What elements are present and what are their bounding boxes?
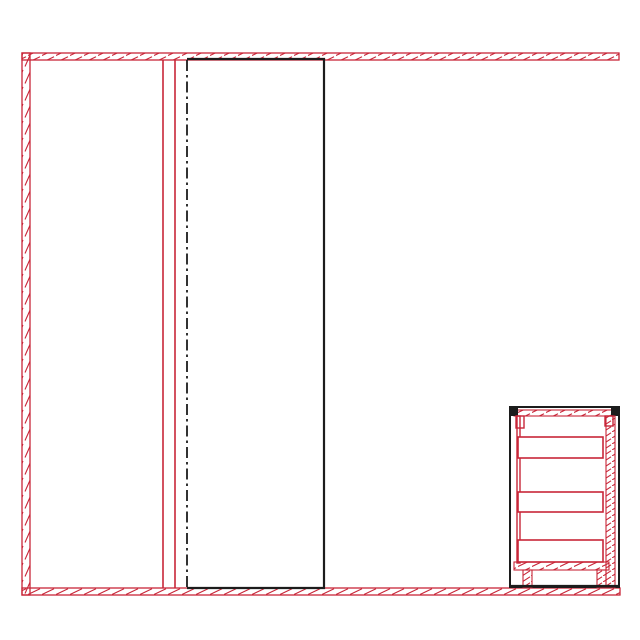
nightstand-drawer-3 bbox=[518, 540, 603, 562]
nightstand-plinth-left bbox=[523, 570, 532, 587]
nightstand-plinth-right bbox=[597, 570, 606, 587]
nightstand-top-panel bbox=[514, 410, 614, 416]
nightstand-drawer-1 bbox=[518, 437, 603, 458]
wall-section-left bbox=[22, 53, 30, 595]
nightstand-section bbox=[510, 407, 619, 587]
nightstand-drawer-2 bbox=[518, 492, 603, 512]
nightstand-right-side-panel bbox=[606, 416, 615, 587]
drawing-canvas: Interior elevation drawing: sectioned ro… bbox=[0, 0, 640, 640]
cad-drawing bbox=[0, 0, 640, 640]
nightstand-top-left-cap bbox=[510, 407, 518, 416]
nightstand-drawers bbox=[518, 437, 603, 562]
wardrobe-outline bbox=[187, 59, 324, 588]
nightstand-top-right-cap bbox=[611, 407, 619, 416]
partition-lines bbox=[163, 60, 175, 588]
nightstand-bottom-panel bbox=[514, 562, 609, 570]
